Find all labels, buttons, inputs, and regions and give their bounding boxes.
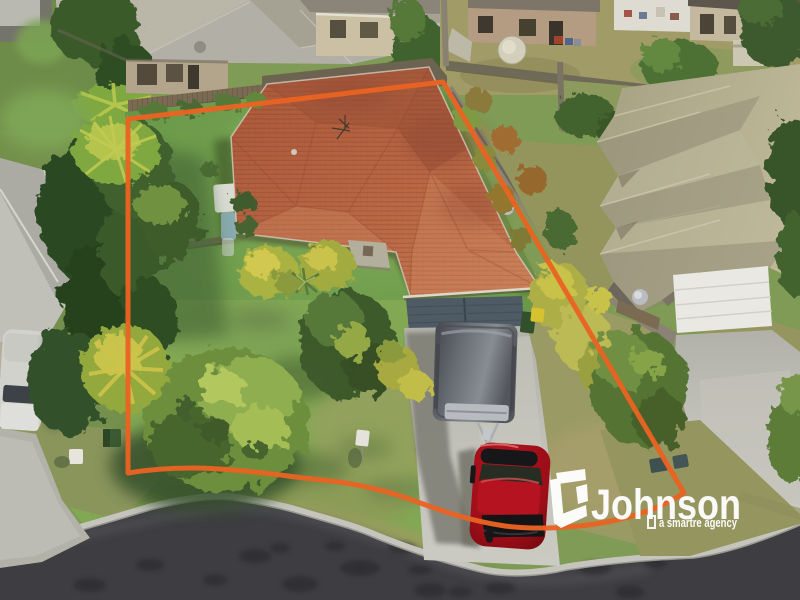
svg-text:a smartre agency: a smartre agency <box>659 516 737 530</box>
